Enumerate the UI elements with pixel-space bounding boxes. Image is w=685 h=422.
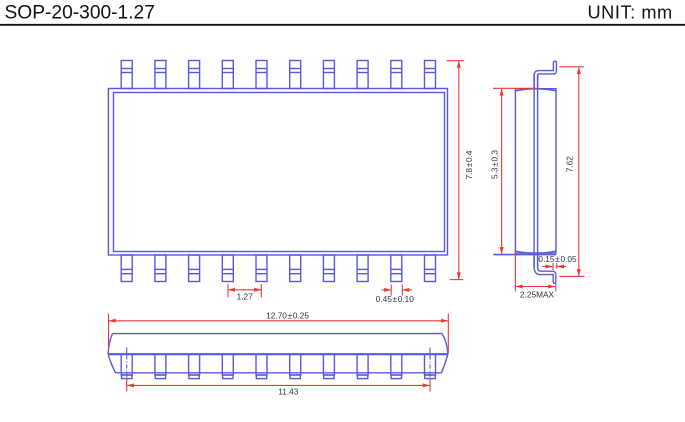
svg-text:0.45 ± 0.10: 0.45 ± 0.10: [376, 294, 415, 304]
svg-text:12.70 ± 0.25: 12.70 ± 0.25: [266, 311, 309, 321]
svg-text:SOP-20-300-1.27: SOP-20-300-1.27: [5, 3, 155, 24]
svg-text:7.8 ± 0.4: 7.8 ± 0.4: [464, 150, 474, 179]
svg-text:1.27: 1.27: [237, 292, 254, 302]
svg-text:5.3 ± 0.3: 5.3 ± 0.3: [490, 150, 500, 179]
svg-text:2.25MAX: 2.25MAX: [520, 290, 555, 300]
svg-text:7.62: 7.62: [564, 156, 574, 173]
svg-text:UNIT: mm: UNIT: mm: [588, 2, 673, 22]
svg-text:11.43: 11.43: [278, 386, 299, 396]
svg-text:0.15 ± 0.05: 0.15 ± 0.05: [538, 254, 577, 264]
